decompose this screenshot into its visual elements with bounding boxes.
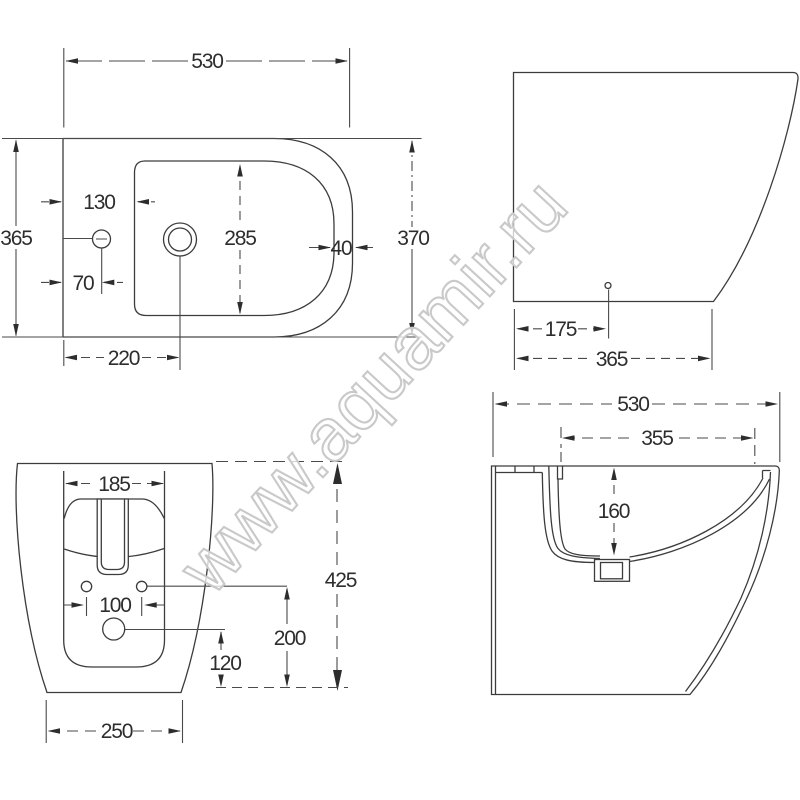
svg-text:40: 40	[331, 237, 352, 260]
svg-text:425: 425	[325, 569, 357, 592]
svg-text:370: 370	[397, 227, 429, 250]
svg-text:130: 130	[83, 191, 115, 214]
svg-text:285: 285	[224, 227, 256, 250]
svg-text:530: 530	[617, 393, 649, 416]
svg-text:220: 220	[108, 347, 140, 370]
svg-text:175: 175	[545, 318, 577, 341]
svg-text:355: 355	[641, 427, 673, 450]
svg-text:70: 70	[73, 272, 94, 295]
svg-text:100: 100	[99, 594, 131, 617]
svg-text:250: 250	[101, 720, 133, 743]
svg-text:120: 120	[209, 652, 241, 675]
svg-text:185: 185	[98, 473, 130, 496]
svg-text:160: 160	[598, 500, 630, 523]
svg-text:530: 530	[191, 50, 223, 73]
svg-text:365: 365	[596, 348, 628, 371]
svg-text:365: 365	[0, 227, 32, 250]
svg-text:200: 200	[274, 627, 306, 650]
